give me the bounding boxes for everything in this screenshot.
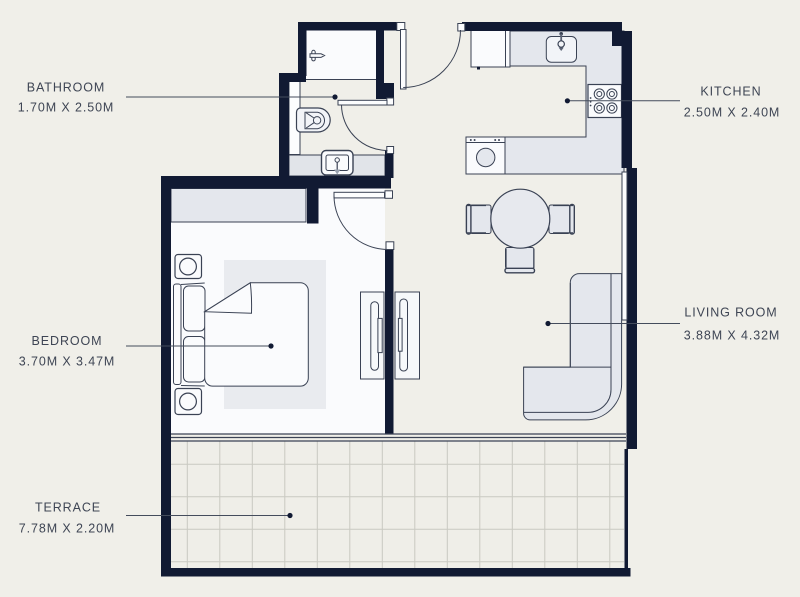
svg-text:KITCHEN: KITCHEN xyxy=(700,85,761,99)
svg-text:1.70M X 2.50M: 1.70M X 2.50M xyxy=(18,101,114,115)
svg-text:7.78M X 2.20M: 7.78M X 2.20M xyxy=(19,522,115,536)
svg-text:3.70M X 3.47M: 3.70M X 3.47M xyxy=(19,355,115,369)
svg-text:TERRACE: TERRACE xyxy=(35,501,101,515)
svg-text:BEDROOM: BEDROOM xyxy=(32,334,103,348)
svg-text:BATHROOM: BATHROOM xyxy=(27,81,106,95)
svg-text:LIVING ROOM: LIVING ROOM xyxy=(684,306,777,320)
svg-text:2.50M X 2.40M: 2.50M X 2.40M xyxy=(684,106,780,120)
svg-text:3.88M X 4.32M: 3.88M X 4.32M xyxy=(684,329,780,343)
